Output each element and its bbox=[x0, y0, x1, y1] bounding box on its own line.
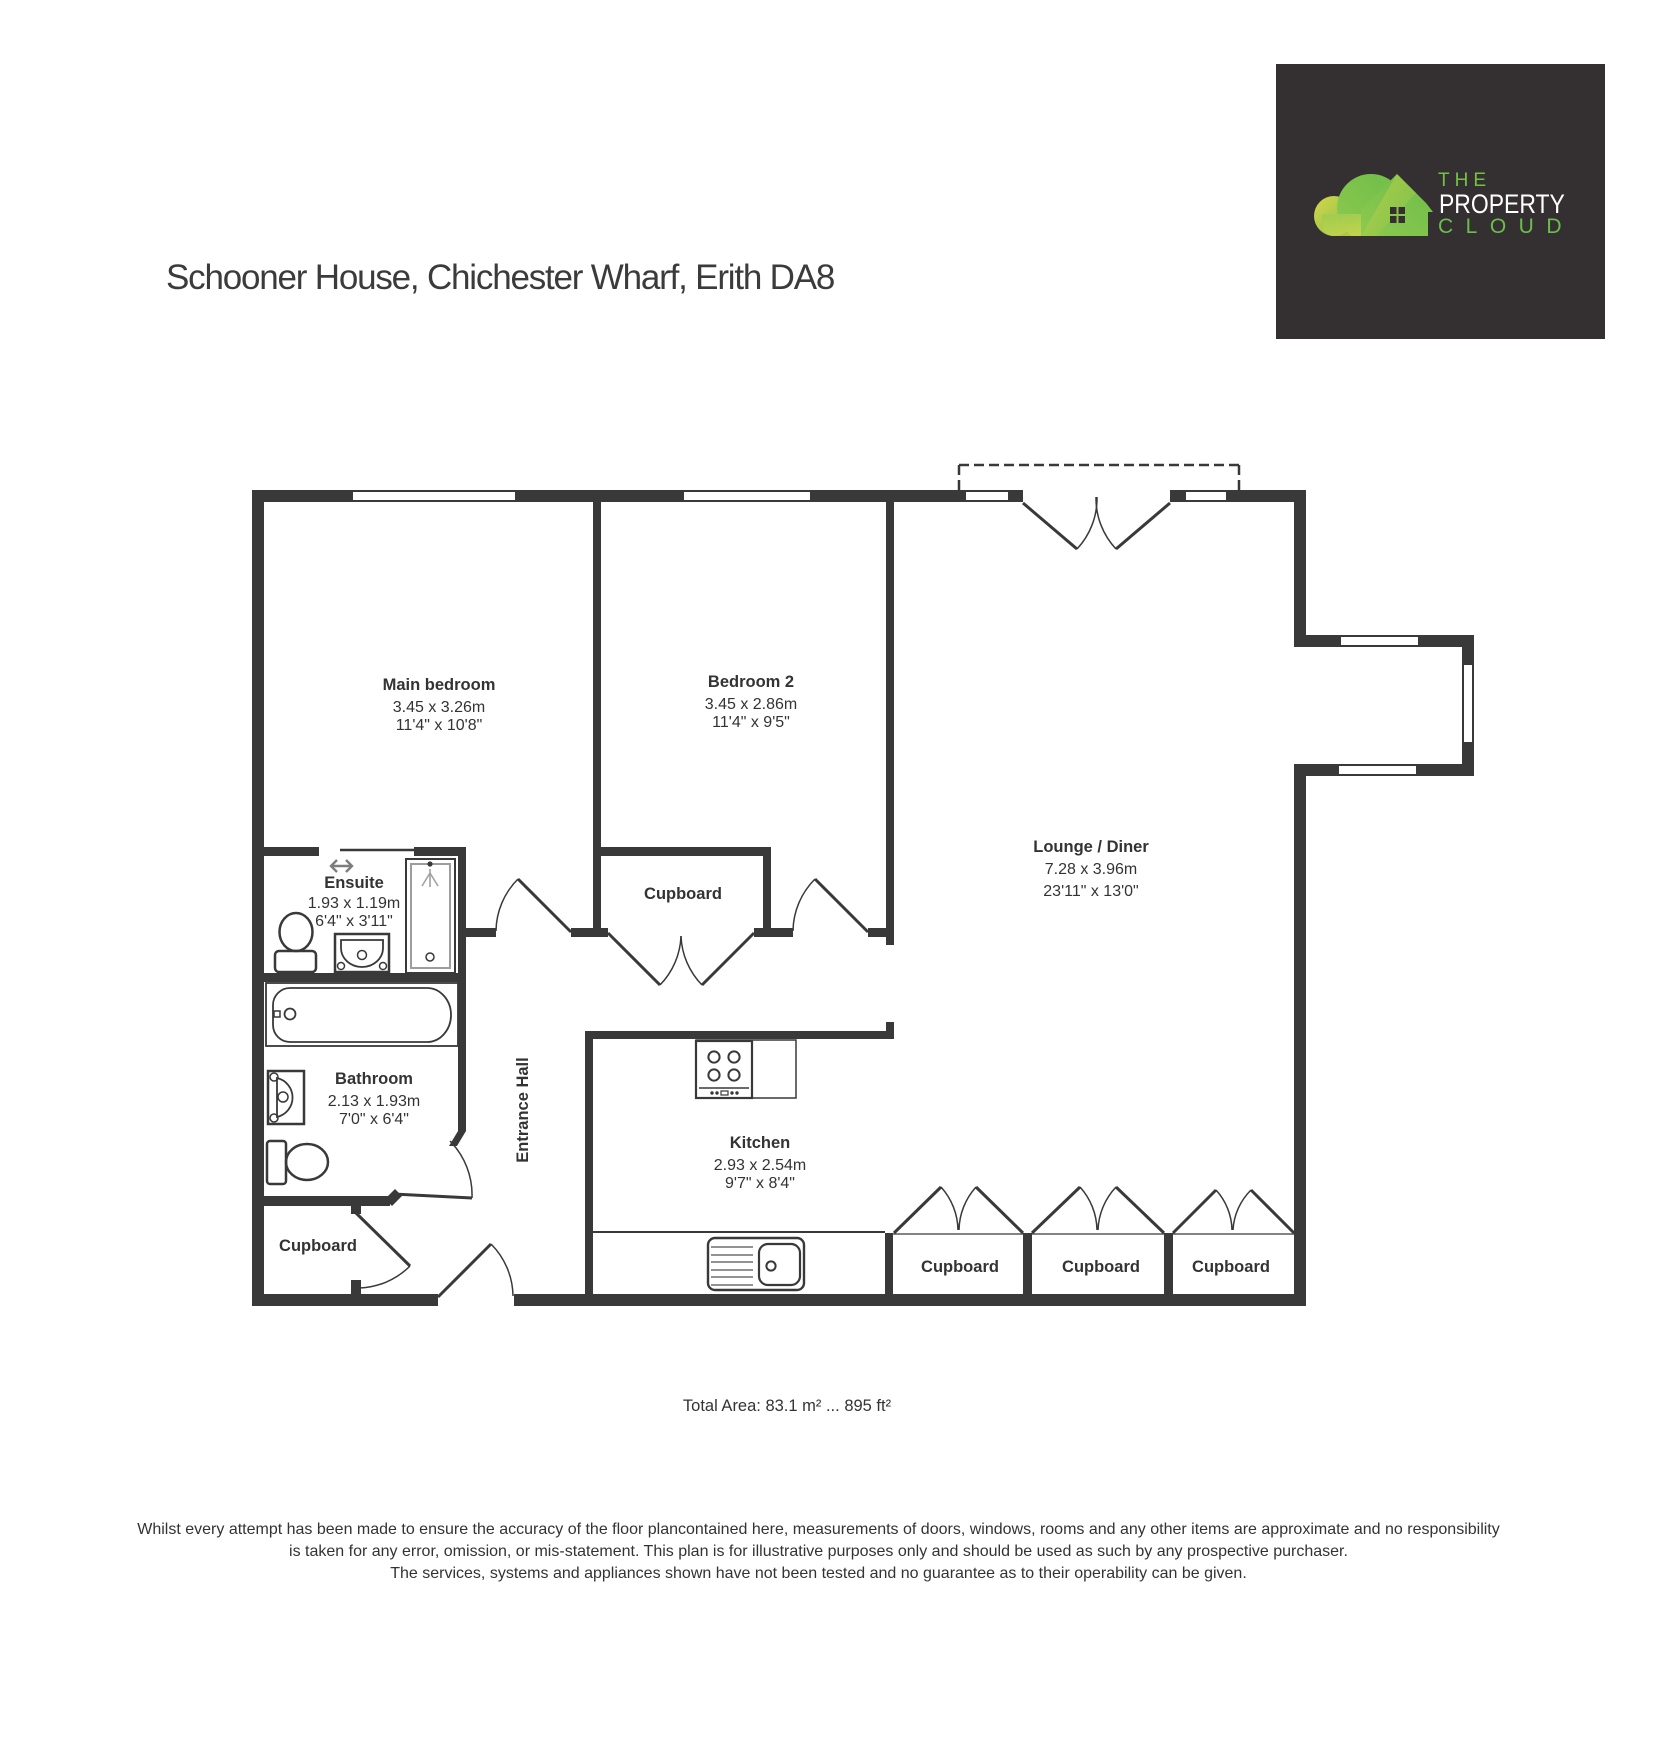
svg-text:1.93 x 1.19m: 1.93 x 1.19m bbox=[308, 895, 401, 912]
svg-text:Bathroom: Bathroom bbox=[335, 1070, 413, 1088]
svg-text:Bedroom 2: Bedroom 2 bbox=[708, 673, 794, 691]
svg-text:Kitchen: Kitchen bbox=[730, 1134, 791, 1152]
svg-text:7.28 x 3.96m: 7.28 x 3.96m bbox=[1045, 861, 1138, 878]
svg-text:11'4" x 10'8": 11'4" x 10'8" bbox=[396, 717, 483, 734]
svg-text:Cupboard: Cupboard bbox=[644, 885, 722, 903]
svg-text:6'4" x 3'11": 6'4" x 3'11" bbox=[315, 913, 393, 930]
svg-text:7'0" x 6'4": 7'0" x 6'4" bbox=[339, 1111, 409, 1128]
svg-text:Entrance Hall: Entrance Hall bbox=[514, 1057, 532, 1162]
svg-text:2.13 x 1.93m: 2.13 x 1.93m bbox=[328, 1093, 421, 1110]
svg-text:Cupboard: Cupboard bbox=[1192, 1258, 1270, 1276]
svg-text:Cupboard: Cupboard bbox=[1062, 1258, 1140, 1276]
svg-text:2.93 x 2.54m: 2.93 x 2.54m bbox=[714, 1157, 807, 1174]
svg-text:Main bedroom: Main bedroom bbox=[383, 676, 496, 694]
svg-text:Cupboard: Cupboard bbox=[279, 1237, 357, 1255]
svg-text:3.45 x 3.26m: 3.45 x 3.26m bbox=[393, 699, 486, 716]
svg-text:Lounge / Diner: Lounge / Diner bbox=[1033, 838, 1149, 856]
svg-text:9'7" x 8'4": 9'7" x 8'4" bbox=[725, 1175, 795, 1192]
svg-text:Ensuite: Ensuite bbox=[324, 874, 384, 892]
svg-text:3.45 x 2.86m: 3.45 x 2.86m bbox=[705, 696, 798, 713]
svg-text:Cupboard: Cupboard bbox=[921, 1258, 999, 1276]
svg-text:11'4" x 9'5": 11'4" x 9'5" bbox=[712, 714, 790, 731]
svg-text:23'11" x 13'0": 23'11" x 13'0" bbox=[1043, 883, 1138, 900]
